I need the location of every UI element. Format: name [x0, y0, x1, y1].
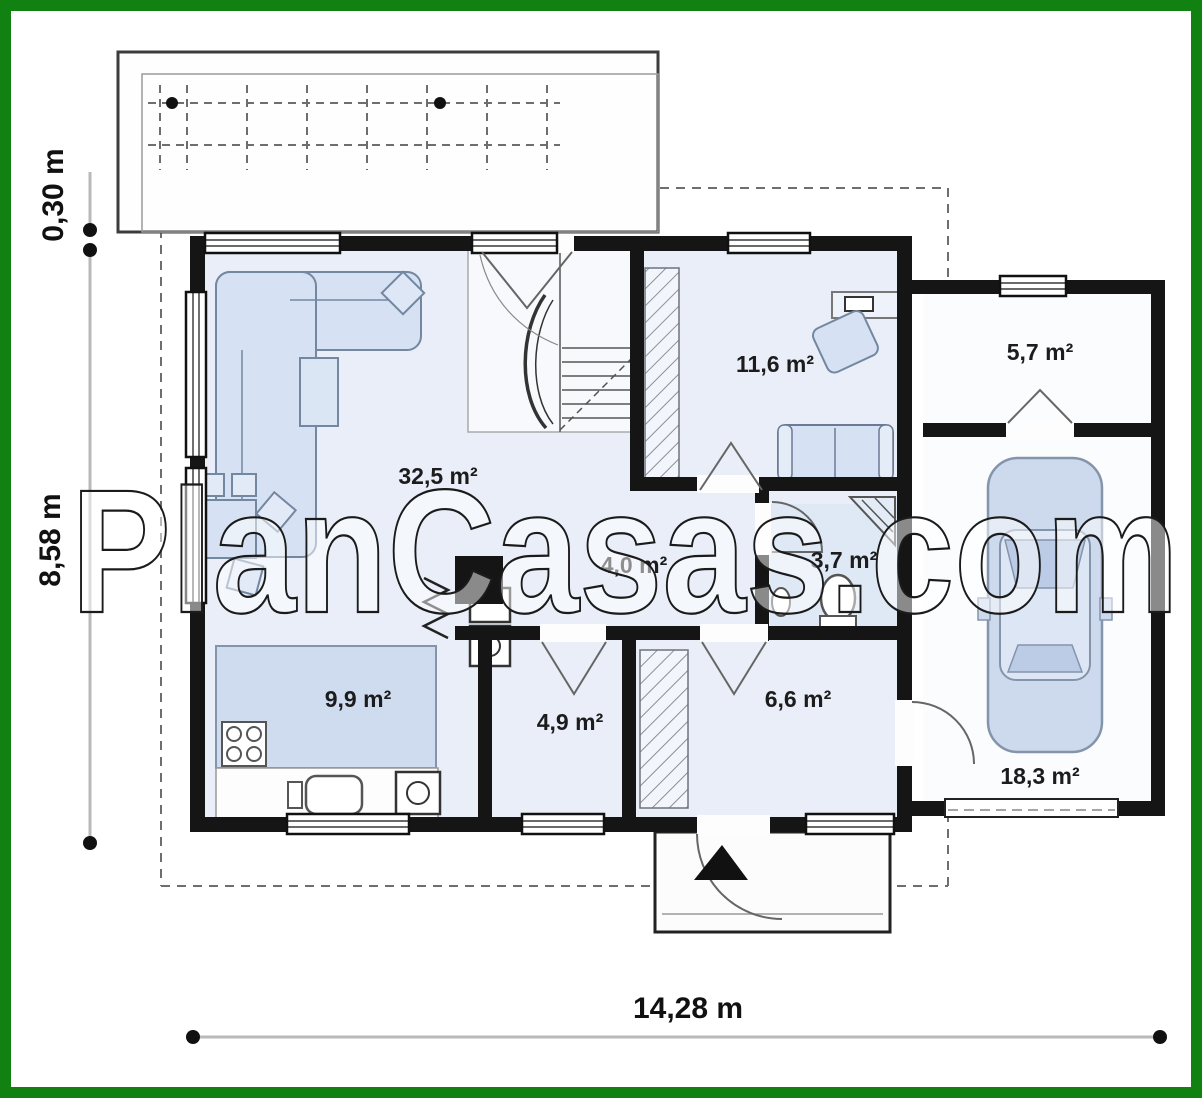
hall-wardrobe-hatched	[640, 650, 688, 808]
sink	[306, 776, 362, 814]
pergola-post-dot	[434, 97, 446, 109]
dimension-left: 8,58 m	[34, 493, 67, 586]
terrace	[118, 52, 658, 232]
room-label-kitchen: 9,9 m²	[325, 686, 392, 712]
room-label-bedroom: 11,6 m²	[736, 351, 814, 377]
room-label-storage: 5,7 m²	[1007, 339, 1074, 365]
floor-plan-container: 32,5 m² 11,6 m² 5,7 m² 4,0 m² 3,7 m² 9,9…	[0, 0, 1202, 1098]
window	[186, 292, 206, 457]
room-label-garage: 18,3 m²	[1000, 763, 1080, 789]
coffee-table	[300, 358, 338, 426]
window	[1000, 276, 1066, 296]
watermark: PlanCasas.com	[71, 454, 1179, 650]
entrance-porch	[655, 832, 890, 932]
room-label-hall: 6,6 m²	[765, 686, 832, 712]
oven	[396, 772, 440, 814]
window	[472, 233, 557, 253]
window	[522, 814, 604, 834]
pergola-post-dot	[166, 97, 178, 109]
garage-door	[945, 799, 1118, 817]
window	[287, 814, 409, 834]
dimension-top-left: 0,30 m	[37, 148, 70, 241]
window	[728, 233, 810, 253]
window	[205, 233, 340, 253]
dimension-bottom: 14,28 m	[633, 992, 743, 1025]
desk-item	[845, 297, 873, 311]
floor-plan-drawing: 32,5 m² 11,6 m² 5,7 m² 4,0 m² 3,7 m² 9,9…	[0, 0, 1202, 1098]
window	[806, 814, 894, 834]
room-label-utility: 4,9 m²	[537, 709, 604, 735]
